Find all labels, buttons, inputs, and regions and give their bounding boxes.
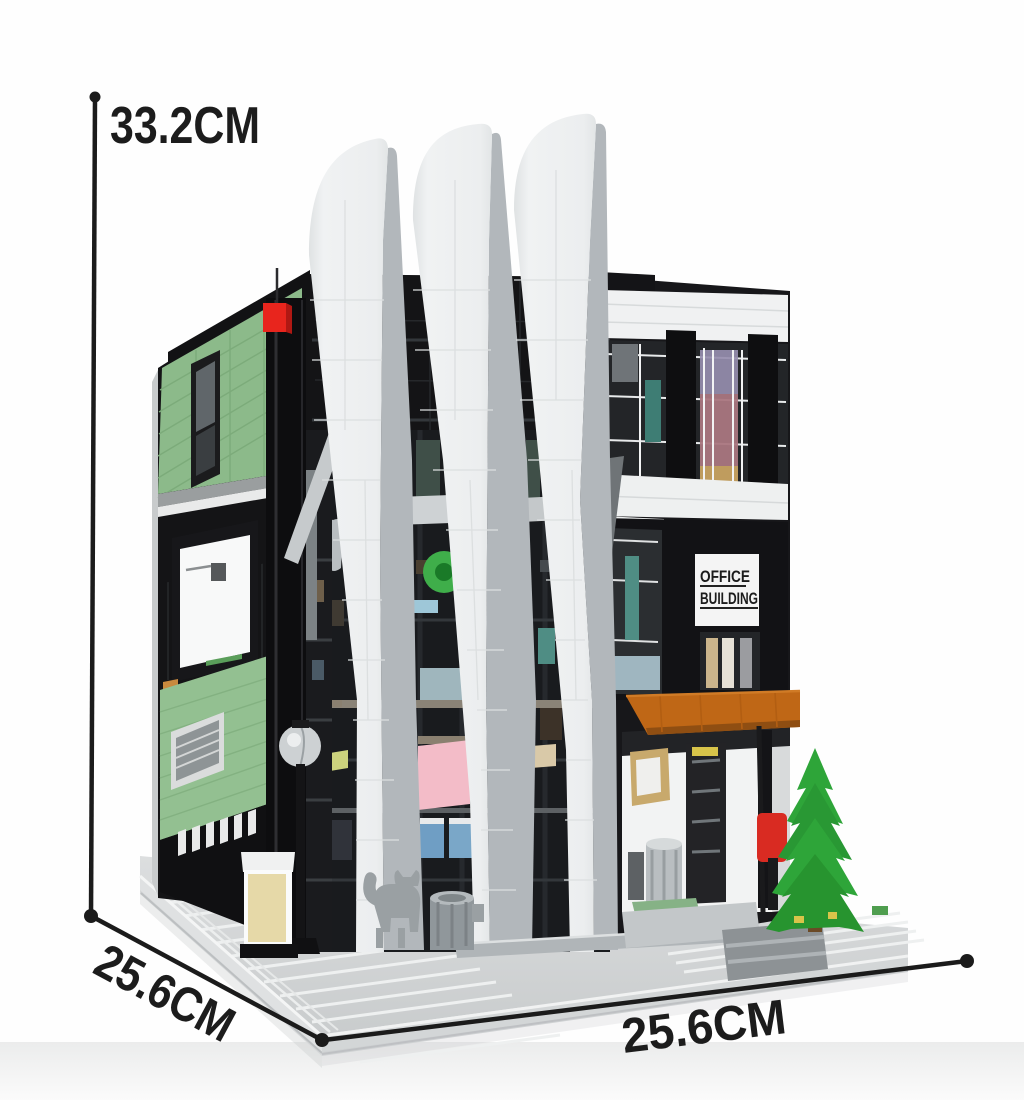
- svg-text:BUILDING: BUILDING: [700, 589, 758, 608]
- svg-text:OFFICE: OFFICE: [700, 567, 750, 586]
- svg-text:33.2CM: 33.2CM: [110, 97, 260, 155]
